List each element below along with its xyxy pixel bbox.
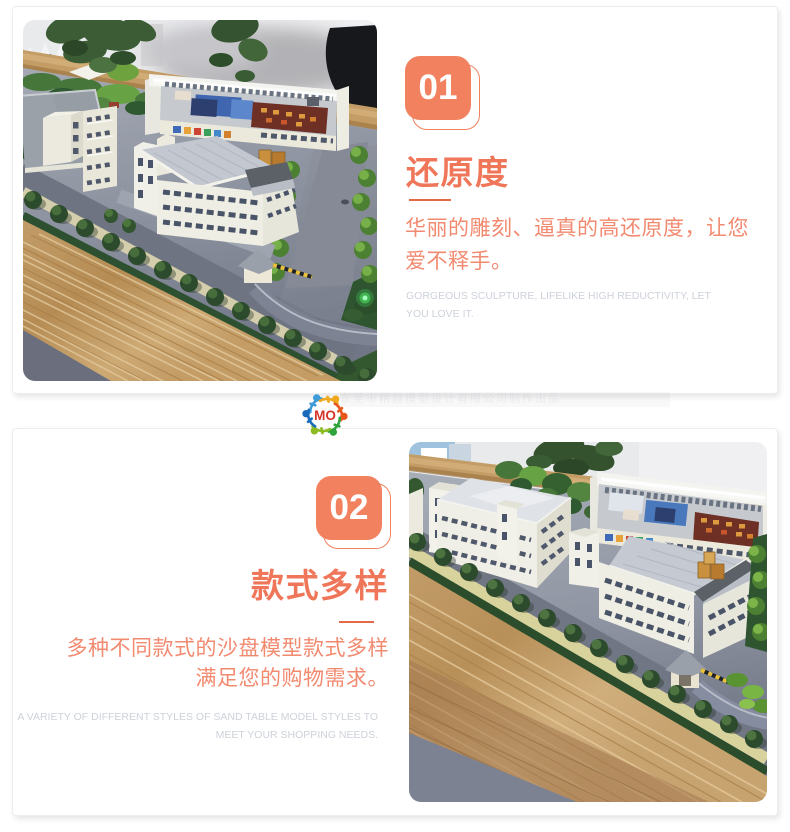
svg-text:MO: MO — [314, 408, 336, 423]
